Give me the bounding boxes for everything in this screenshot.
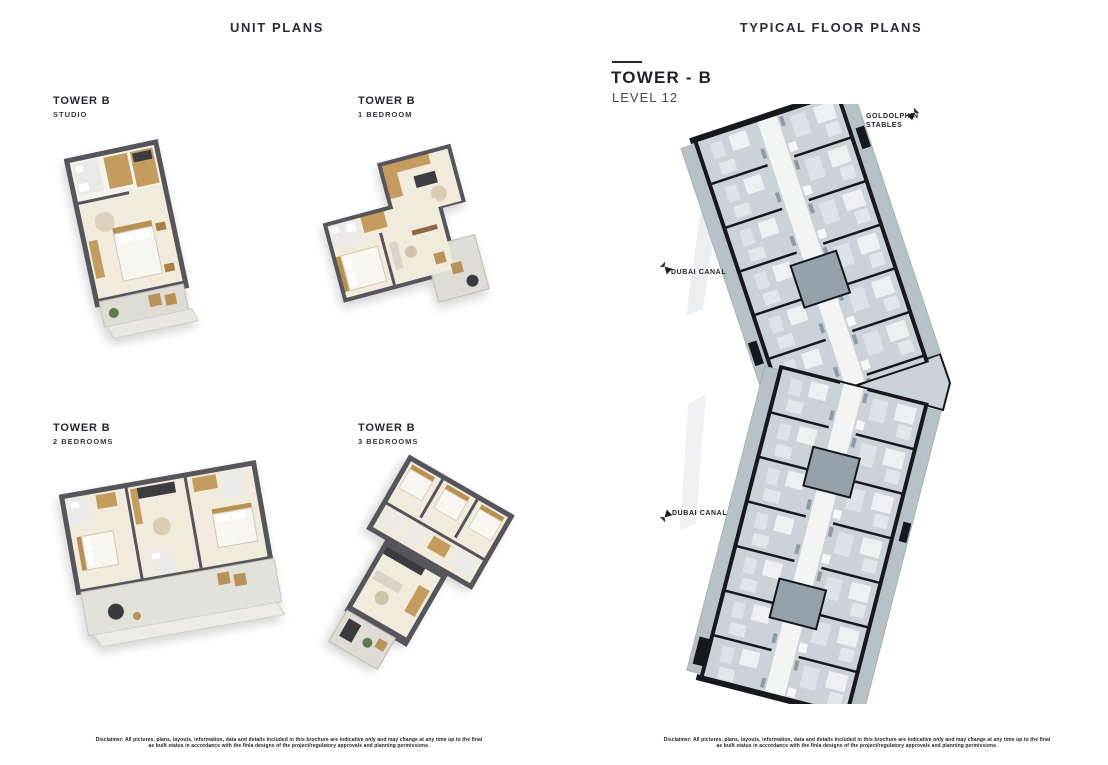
disclaimer-right: Disclaimer: All pictures, plans, layouts… bbox=[661, 737, 1053, 750]
tower-level: LEVEL 12 bbox=[612, 90, 678, 105]
three-bedroom-floorplan-image bbox=[301, 451, 520, 700]
three-bedroom-tower-name: TOWER B bbox=[358, 423, 418, 434]
tower-title: TOWER - B bbox=[611, 68, 712, 88]
one-bedroom-floorplan-image bbox=[307, 141, 493, 334]
canal-upper-label: DUBAI CANAL bbox=[671, 268, 726, 277]
typical-floor-plans-header: TYPICAL FLOOR PLANS bbox=[554, 20, 1108, 35]
studio-tower-name: TOWER B bbox=[53, 96, 110, 107]
three-bedroom-floorplan bbox=[301, 451, 520, 700]
three-bedroom-type: 3 BEDROOMS bbox=[358, 438, 418, 446]
two-bedroom-label: TOWER B 2 BEDROOMS bbox=[53, 423, 113, 446]
disclaimer-left: Disclaimer: All pictures, plans, layouts… bbox=[93, 737, 485, 750]
one-bedroom-floorplan bbox=[307, 141, 493, 334]
studio-floorplan bbox=[61, 137, 198, 344]
brochure-page: UNIT PLANS TYPICAL FLOOR PLANS TOWER - B… bbox=[0, 0, 1108, 765]
two-bedroom-tower-name: TOWER B bbox=[53, 423, 113, 434]
studio-label: TOWER B STUDIO bbox=[53, 96, 110, 119]
typical-floorplan bbox=[648, 104, 978, 704]
studio-type: STUDIO bbox=[53, 111, 110, 119]
two-bedroom-floorplan-image bbox=[54, 456, 289, 655]
unit-plans-header: UNIT PLANS bbox=[0, 20, 554, 35]
typical-floorplan-image bbox=[648, 104, 978, 704]
two-bedroom-floorplan bbox=[54, 456, 289, 655]
one-bedroom-label: TOWER B 1 BEDROOM bbox=[358, 96, 415, 119]
two-bedroom-type: 2 BEDROOMS bbox=[53, 438, 113, 446]
three-bedroom-label: TOWER B 3 BEDROOMS bbox=[358, 423, 418, 446]
canal-lower-label: DUBAI CANAL bbox=[672, 509, 727, 518]
stables-label-line2: STABLES bbox=[866, 121, 919, 130]
tower-title-rule bbox=[612, 61, 642, 63]
one-bedroom-type: 1 BEDROOM bbox=[358, 111, 415, 119]
one-bedroom-tower-name: TOWER B bbox=[358, 96, 415, 107]
studio-floorplan-image bbox=[61, 137, 198, 344]
